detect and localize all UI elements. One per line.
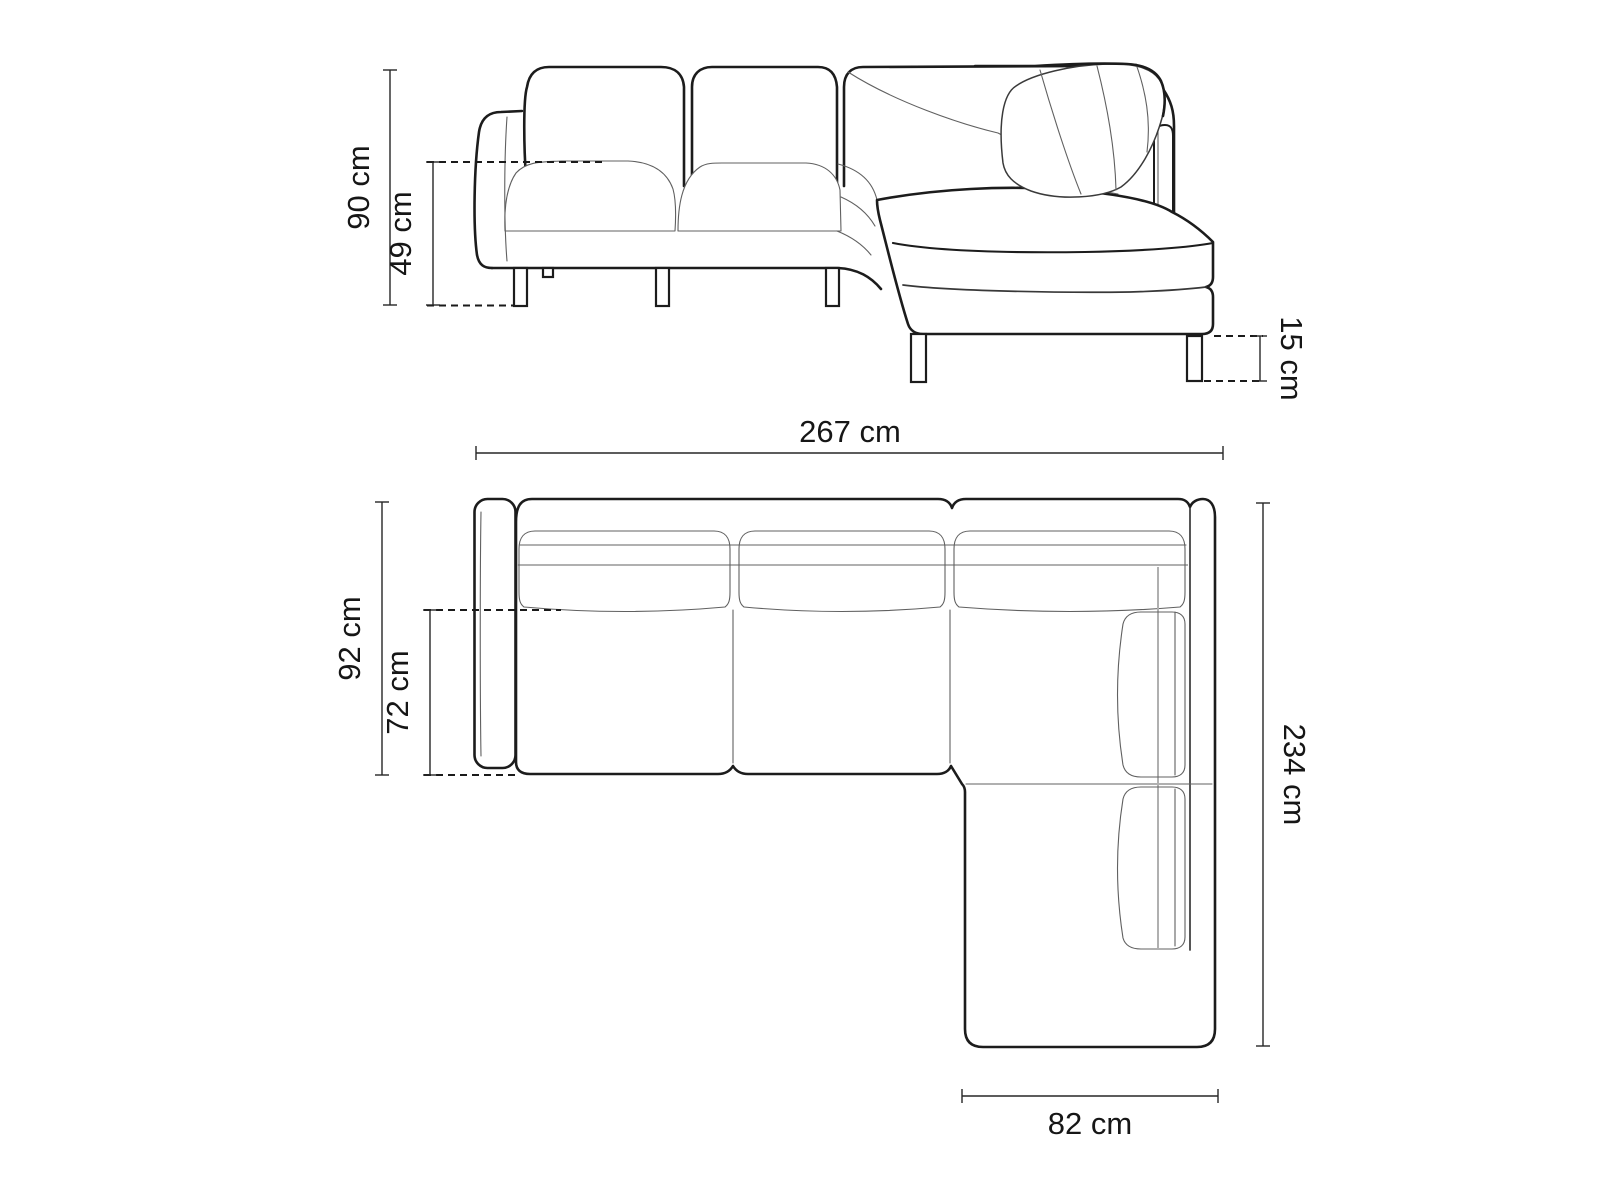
chaise-width-label: 82 cm — [1048, 1106, 1132, 1141]
sofa-dimensions-diagram: 90 cm 49 cm 15 cm — [0, 0, 1600, 1200]
side-leg-glide — [543, 268, 553, 277]
side-leg-1 — [514, 268, 527, 306]
plan-back-cushion-2 — [739, 531, 945, 612]
dimension-total-width: 267 cm — [476, 414, 1223, 460]
side-leg-2 — [656, 268, 669, 306]
plan-back-cushion-corner — [954, 531, 1185, 612]
side-corner-bulge-3 — [837, 231, 871, 255]
dimension-side-length: 234 cm — [1256, 503, 1312, 1046]
side-leg-3 — [826, 268, 839, 306]
dimension-seat-depth: 72 cm — [380, 610, 437, 775]
dimension-seat-height: 49 cm — [383, 162, 440, 305]
diagram-svg: 90 cm 49 cm 15 cm — [0, 0, 1600, 1200]
side-chaise-leg-far — [1187, 336, 1202, 381]
top-plan-view: 267 cm 92 cm 72 cm 234 cm 82 — [332, 414, 1312, 1141]
side-corner-pillow — [1001, 64, 1164, 197]
side-armrest-seam — [505, 117, 507, 261]
side-seat-cushion-1 — [505, 161, 676, 231]
side-chaise-leg-near — [911, 334, 926, 382]
sofa-side-drawing — [475, 64, 1213, 382]
side-seat-cushion-2 — [678, 163, 841, 231]
dimension-chaise-width: 82 cm — [962, 1089, 1218, 1141]
side-length-label: 234 cm — [1277, 724, 1312, 826]
side-chaise-body — [877, 188, 1213, 334]
plan-back-cushion-1 — [519, 531, 730, 612]
side-corner-bulge-2 — [841, 197, 875, 226]
sofa-plan-drawing — [475, 499, 1216, 1047]
total-depth-label: 92 cm — [332, 596, 367, 680]
dimension-leg-height: 15 cm — [1253, 316, 1309, 400]
side-chaise-bolster — [1154, 125, 1173, 213]
plan-body-outline — [516, 499, 1215, 1047]
seat-height-label: 49 cm — [383, 191, 418, 275]
total-height-label: 90 cm — [341, 145, 376, 229]
total-width-label: 267 cm — [799, 414, 901, 449]
seat-depth-label: 72 cm — [380, 650, 415, 734]
leg-height-label: 15 cm — [1274, 316, 1309, 400]
side-elevation-view: 90 cm 49 cm 15 cm — [341, 64, 1309, 401]
